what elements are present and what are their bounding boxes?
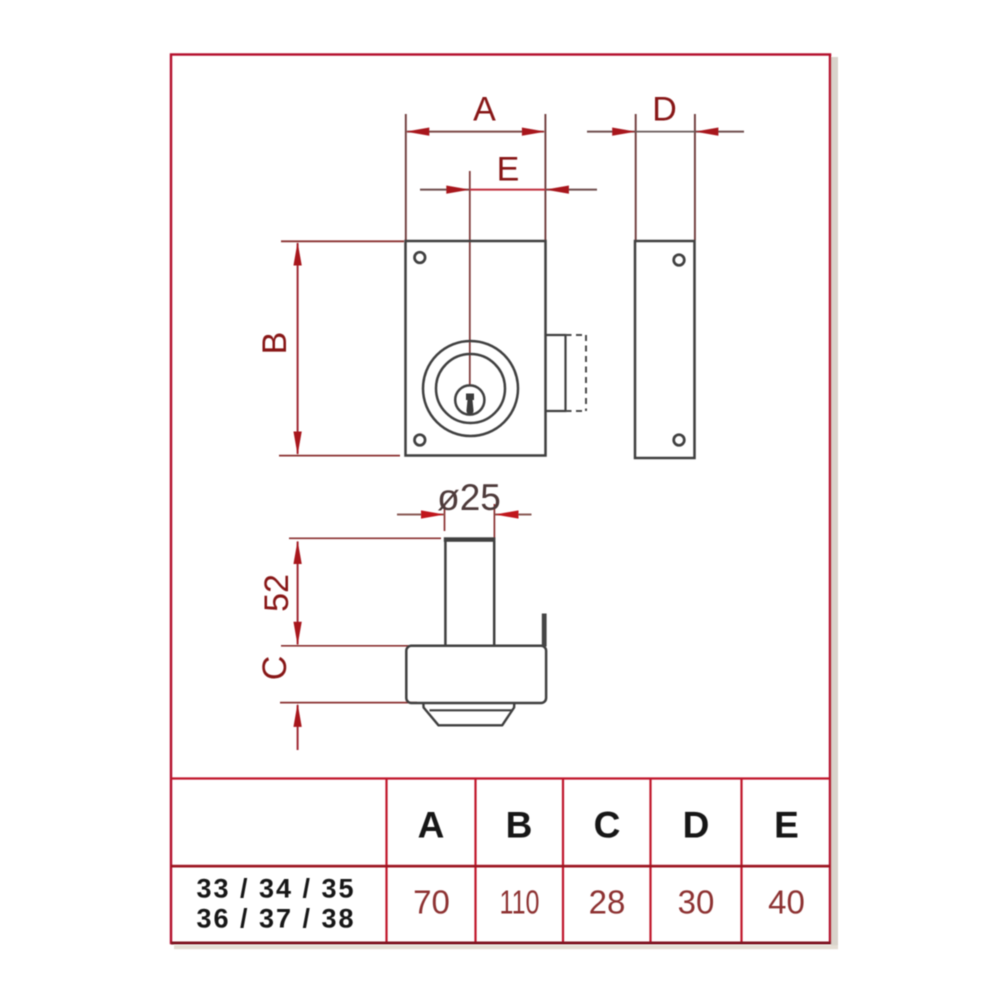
svg-text:ø25: ø25: [437, 477, 501, 518]
svg-text:D: D: [652, 91, 677, 129]
svg-text:110: 110: [500, 884, 540, 921]
svg-text:52: 52: [258, 574, 296, 612]
svg-text:B: B: [256, 332, 294, 355]
svg-text:36 / 37 / 38: 36 / 37 / 38: [196, 904, 355, 934]
svg-text:30: 30: [678, 884, 715, 921]
svg-text:A: A: [418, 805, 445, 846]
svg-text:B: B: [506, 805, 533, 846]
svg-text:C: C: [594, 805, 621, 846]
svg-text:28: 28: [589, 884, 626, 921]
svg-text:40: 40: [768, 884, 805, 921]
svg-text:A: A: [473, 91, 496, 129]
svg-text:33 / 34 / 35: 33 / 34 / 35: [196, 874, 355, 904]
svg-text:70: 70: [413, 884, 450, 921]
svg-text:E: E: [497, 151, 520, 189]
svg-text:D: D: [683, 805, 710, 846]
svg-text:C: C: [256, 656, 294, 681]
svg-text:E: E: [774, 805, 799, 846]
